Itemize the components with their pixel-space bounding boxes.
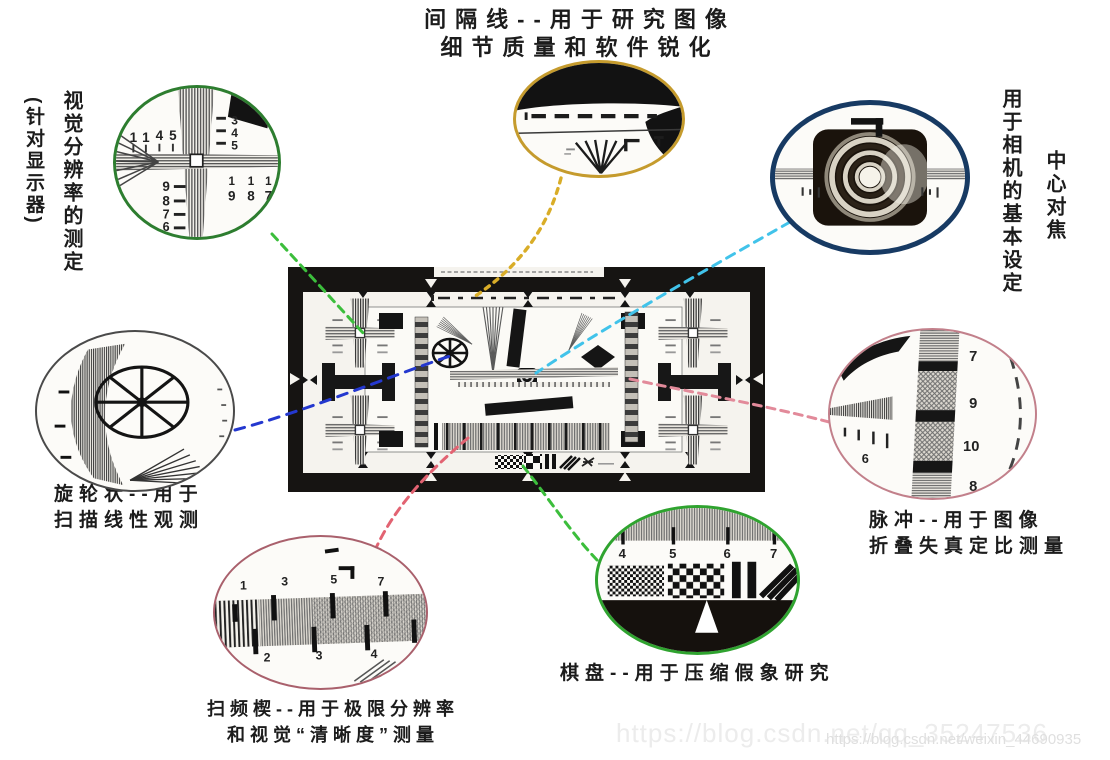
sweep-numbers-bottom: 2 3 4: [264, 647, 378, 665]
svg-text:8: 8: [247, 188, 255, 203]
svg-text:1: 1: [142, 130, 150, 145]
svg-text:3: 3: [281, 575, 288, 589]
chart-title-bar: [434, 267, 604, 277]
label-interval-line1: 间隔线--用于研究图像: [330, 6, 830, 34]
magnifier-interval-lines: [513, 60, 685, 178]
svg-text:7: 7: [377, 575, 384, 589]
svg-text:8: 8: [162, 193, 170, 208]
magnifier-pulse: 7 9 10 8 6: [828, 328, 1037, 500]
svg-text:9: 9: [162, 179, 170, 194]
tick-numbers: 4 5 6 7: [619, 546, 778, 561]
svg-text:4: 4: [156, 128, 164, 143]
magnifier-sweep-wedge: 1 3 5 7 2 3 4: [213, 535, 428, 690]
diagonal-hatch: [354, 660, 413, 686]
label-visual-resolution: 视觉分辨率的测定: [57, 90, 86, 274]
chart-wheel: [433, 339, 467, 367]
dashed-arc: [1008, 357, 1021, 474]
svg-text:1: 1: [240, 579, 247, 593]
svg-text:1: 1: [130, 130, 138, 145]
svg-text:4: 4: [619, 546, 627, 561]
svg-text:1: 1: [228, 176, 235, 188]
label-pulse-line2: 折叠失真定比测量: [869, 534, 1069, 560]
svg-text:5: 5: [669, 546, 676, 561]
magnifier-wheel: [35, 330, 235, 492]
svg-text:4: 4: [371, 647, 378, 661]
label-center-focus: 中心对焦: [1040, 150, 1069, 242]
sweep-band: [215, 590, 426, 656]
magnifier-checkerboard: 4 5 6 7: [595, 505, 800, 655]
left-wedge: [830, 396, 893, 419]
edge-ticks: [217, 389, 227, 438]
magnifier-center-focus: [770, 100, 970, 255]
svg-text:6: 6: [723, 546, 730, 561]
pulse-column: [911, 330, 959, 498]
test-chart: [288, 267, 765, 492]
wedge-fan: [576, 140, 626, 173]
svg-text:6: 6: [862, 451, 869, 466]
top-sweep: [598, 508, 797, 541]
magnifier-visual-resolution: 1 1 4 5 3 4 5 9 8 7 6 1 1 1 9 8 7: [113, 85, 281, 240]
svg-text:7: 7: [969, 349, 977, 365]
label-visual-resolution-paren: (针对显示器): [20, 97, 47, 226]
watermark-url-small: https://blog.csdn.net/weixin_44690935: [826, 731, 1081, 748]
svg-text:3: 3: [316, 649, 323, 663]
label-camera-settings: 用于相机的基本设定: [996, 88, 1025, 295]
label-wheel-line2: 扫描线性观测: [54, 508, 204, 534]
svg-text:1: 1: [248, 176, 255, 188]
bottom-fan: [130, 449, 205, 484]
svg-text:2: 2: [264, 651, 271, 665]
spoked-wheel: [96, 367, 188, 437]
svg-text:1: 1: [265, 176, 272, 188]
svg-text:5: 5: [330, 573, 337, 587]
svg-text:10: 10: [963, 439, 979, 455]
label-sweep-line1: 扫频楔--用于极限分辨率: [168, 696, 498, 722]
wedge-ticks: [844, 428, 889, 449]
svg-text:7: 7: [770, 546, 777, 561]
corner-mark: [325, 548, 355, 579]
chart-sweep-band: [434, 423, 610, 450]
svg-text:8: 8: [969, 479, 977, 495]
checker-strip: [608, 562, 797, 600]
sweep-numbers-top: 1 3 5 7: [240, 573, 384, 593]
label-sweep-wedge: 扫频楔--用于极限分辨率 和视觉“清晰度”测量: [168, 696, 498, 748]
iso12233-test-chart-diagram: 1 1 4 5 3 4 5 9 8 7 6 1 1 1 9 8 7: [0, 0, 1110, 760]
label-pulse-line1: 脉冲--用于图像: [869, 508, 1069, 534]
svg-text:7: 7: [265, 188, 273, 203]
svg-text:9: 9: [969, 396, 977, 412]
label-interval-lines: 间隔线--用于研究图像 细节质量和软件锐化: [330, 6, 830, 61]
corner-marks: [624, 136, 664, 151]
label-sweep-line2: 和视觉“清晰度”测量: [168, 722, 498, 748]
label-checkerboard: 棋盘--用于压缩假象研究: [560, 658, 835, 685]
svg-text:9: 9: [228, 188, 236, 203]
svg-text:6: 6: [163, 220, 170, 234]
label-interval-line2: 细节质量和软件锐化: [330, 34, 830, 62]
svg-text:5: 5: [169, 128, 177, 143]
svg-text:5: 5: [231, 139, 238, 153]
label-pulse: 脉冲--用于图像 折叠失真定比测量: [869, 508, 1069, 559]
